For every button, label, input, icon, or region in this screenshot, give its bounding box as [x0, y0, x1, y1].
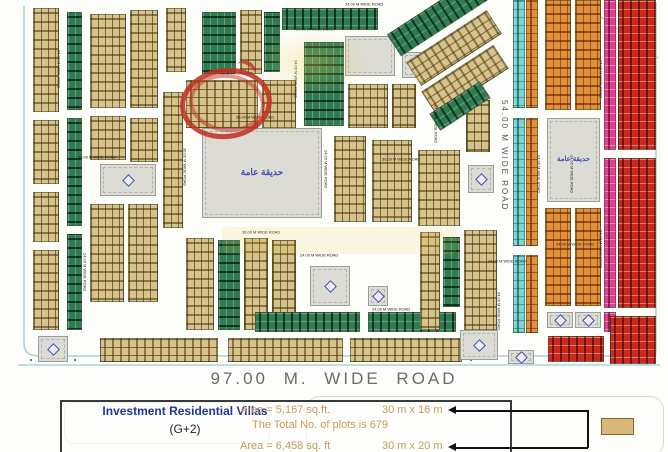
plot-block: [368, 312, 456, 332]
plot-block: [618, 0, 656, 150]
subdivision-map: حديقة عامةحديقة عامة24.00 M WIDE ROAD24.…: [0, 0, 668, 372]
main-road-label: 97.00 M. WIDE ROAD: [0, 369, 668, 389]
plot-block: [392, 84, 416, 128]
plot-block: [130, 10, 158, 108]
road-label: 24.00 M WIDE ROAD: [300, 254, 338, 258]
mosque-icon: [47, 343, 60, 356]
plot-block: [526, 255, 538, 333]
road-label: 24.00 M WIDE ROAD: [488, 260, 526, 264]
plot-block: [33, 120, 59, 184]
plot-block: [130, 118, 158, 162]
legend-area-1: Area = 5,167 sq.ft.: [240, 404, 330, 416]
road-label: 24.00 M WIDE ROAD: [323, 150, 327, 188]
mosque-icon: [475, 173, 488, 186]
road-label: 24.00 M WIDE ROAD: [536, 155, 540, 193]
plot-block: [282, 8, 378, 30]
road-label: 54.00 M WIDE ROAD: [500, 100, 508, 211]
facility-block: [310, 266, 350, 306]
plot-block: [604, 158, 616, 308]
park-label: حديقة عامة: [557, 156, 590, 164]
facility-block: [368, 286, 388, 306]
plot-block: [90, 204, 124, 302]
facility-block: [460, 330, 498, 360]
plot-block: [372, 140, 412, 222]
plot-block: [67, 234, 82, 330]
road-label: 24.00 M WIDE ROAD: [345, 3, 383, 7]
plot-block: [526, 0, 538, 108]
plot-block: [464, 230, 497, 330]
road-label: 24.00 M WIDE ROAD: [433, 105, 437, 143]
road-label: 24.00 M WIDE ROAD: [56, 50, 60, 88]
legend-swatch: [601, 418, 634, 435]
mosque-icon: [122, 174, 135, 187]
plot-block: [334, 136, 366, 222]
plot-block: [348, 84, 388, 128]
watermark: [222, 227, 457, 254]
facility-block: [38, 336, 68, 362]
mosque-icon: [554, 314, 567, 327]
plot-block: [228, 338, 343, 362]
plot-block: [548, 336, 604, 362]
road-label: 36.00 M WIDE ROAD: [382, 158, 420, 162]
plot-block: [545, 0, 571, 110]
plot-block: [100, 338, 218, 362]
plot-block: [513, 118, 525, 246]
mosque-icon: [582, 314, 595, 327]
legend-dims-2: 30 m x 20 m: [382, 440, 443, 452]
plot-block: [166, 8, 186, 72]
plot-block: [67, 118, 82, 226]
watermark: [255, 30, 370, 96]
plot-block: [255, 312, 360, 332]
legend-panel: Investment Residential Villas (G+2) Area…: [0, 396, 668, 452]
facility-block: [575, 312, 601, 328]
plot-block: [418, 150, 460, 226]
plot-block: [186, 238, 214, 330]
plot-block: [350, 338, 462, 362]
road-label: 24.00 M WIDE ROAD: [496, 292, 500, 330]
plot-block: [610, 316, 656, 364]
road-label: 24.00 M WIDE ROAD: [569, 155, 573, 193]
plot-block: [33, 250, 59, 330]
plot-block: [90, 116, 126, 160]
plot-block: [33, 192, 59, 242]
facility-block: [547, 312, 573, 328]
mosque-icon: [473, 339, 486, 352]
park-area: حديقة عامة: [202, 128, 322, 218]
plot-block: [67, 12, 82, 110]
road-label: 36.00 M WIDE ROAD: [182, 148, 186, 186]
facility-block: [508, 350, 534, 364]
legend-total-plots: The Total No. of plots is 679: [252, 419, 388, 431]
road-label: 24.00 M WIDE ROAD: [82, 253, 86, 291]
legend-area-2: Area = 6,458 sq. ft: [240, 440, 330, 452]
road-label: 36.00 M WIDE ROAD: [78, 156, 116, 160]
left-arrow-icon: [452, 447, 588, 449]
legend-dims-1: 30 m x 16 m: [382, 404, 443, 416]
road-label: 24.00 M WIDE ROAD: [598, 60, 602, 98]
road-label: 24.00 M WIDE ROAD: [372, 308, 410, 312]
plot-block: [513, 255, 525, 333]
plot-block: [513, 0, 525, 108]
facility-block: [100, 164, 156, 196]
plot-block: [618, 158, 656, 308]
road-label: 24.00 M WIDE ROAD: [556, 243, 594, 247]
plot-block: [604, 0, 616, 150]
plot-block: [90, 14, 126, 108]
plot-block: [128, 204, 158, 302]
plot-block: [202, 12, 236, 74]
mosque-icon: [515, 351, 528, 364]
facility-block: [468, 165, 494, 193]
park-area: حديقة عامة: [547, 118, 600, 202]
road-label: 24.00 M WIDE ROAD: [598, 230, 602, 268]
mosque-icon: [324, 280, 337, 293]
plot-map-screenshot: حديقة عامةحديقة عامة24.00 M WIDE ROAD24.…: [0, 0, 668, 452]
mosque-icon: [372, 290, 385, 303]
plot-block: [545, 208, 571, 306]
park-label: حديقة عامة: [241, 168, 283, 178]
legend-bracket-line: [587, 410, 589, 448]
left-arrow-icon: [452, 410, 588, 412]
